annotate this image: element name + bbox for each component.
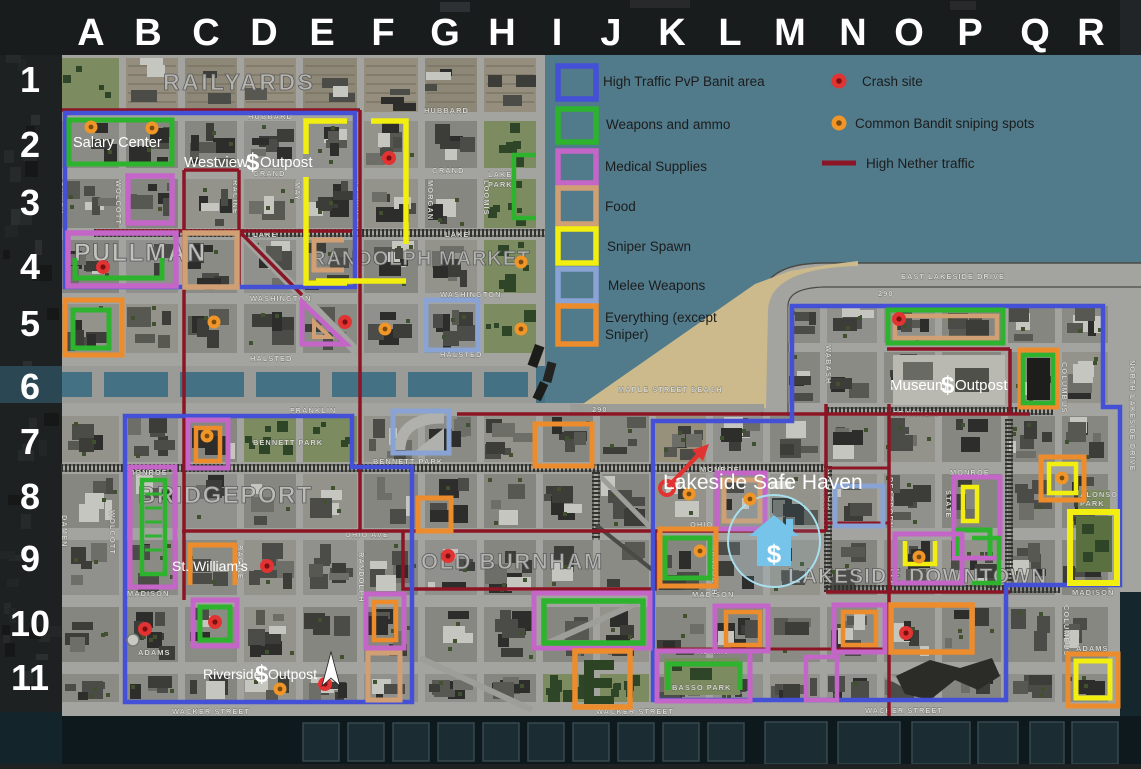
svg-text:MAPLE STREET BEACH: MAPLE STREET BEACH [618, 385, 723, 394]
svg-text:NORTH LAKESIDE DRIVE: NORTH LAKESIDE DRIVE [1128, 360, 1137, 472]
svg-text:GRAND: GRAND [432, 166, 465, 175]
svg-text:LAKE: LAKE [445, 230, 469, 239]
svg-text:5: 5 [20, 303, 40, 344]
svg-text:MORGAN: MORGAN [426, 180, 435, 220]
svg-text:O: O [894, 12, 924, 54]
svg-text:Riverside: Riverside [203, 666, 262, 682]
svg-text:B: B [134, 12, 161, 54]
svg-text:Crash site: Crash site [862, 74, 923, 89]
svg-text:H: H [488, 12, 515, 54]
svg-text:$: $ [255, 661, 269, 688]
svg-text:RAILYARDS: RAILYARDS [163, 69, 315, 95]
svg-text:LOOMIS: LOOMIS [482, 180, 491, 216]
svg-text:G: G [430, 12, 460, 54]
svg-text:A: A [77, 12, 104, 54]
svg-text:EAST LAKESIDE DRIVE: EAST LAKESIDE DRIVE [901, 272, 1005, 281]
svg-text:RANDOLPH MARKET: RANDOLPH MARKET [311, 248, 530, 270]
svg-text:$: $ [767, 539, 782, 569]
svg-text:Sniper): Sniper) [605, 327, 649, 342]
svg-text:Outpost: Outpost [955, 377, 1008, 394]
svg-text:P: P [957, 12, 982, 54]
svg-text:C: C [192, 12, 219, 54]
svg-text:$: $ [246, 149, 260, 176]
svg-text:FRANKLIN: FRANKLIN [290, 406, 336, 415]
svg-text:High Nether traffic: High Nether traffic [866, 156, 975, 171]
svg-text:ADAMS: ADAMS [138, 648, 171, 657]
svg-text:DAMEN: DAMEN [60, 515, 69, 548]
svg-text:St. William's: St. William's [172, 558, 248, 574]
svg-text:WOLCOTT: WOLCOTT [114, 180, 123, 225]
svg-text:WACKER STREET: WACKER STREET [172, 707, 250, 716]
svg-text:Medical Supplies: Medical Supplies [605, 159, 707, 174]
svg-text:1: 1 [20, 59, 40, 100]
svg-text:Everything (except: Everything (except [605, 310, 717, 325]
svg-text:Museum: Museum [890, 377, 948, 394]
svg-text:LAKE: LAKE [488, 170, 512, 179]
svg-text:$: $ [941, 372, 955, 399]
svg-text:J: J [600, 12, 621, 54]
svg-text:MAY: MAY [293, 182, 302, 201]
svg-text:High Traffic PvP Banit area: High Traffic PvP Banit area [603, 74, 765, 89]
svg-text:Sniper Spawn: Sniper Spawn [607, 239, 691, 254]
svg-text:WOLCOTT: WOLCOTT [108, 510, 117, 555]
svg-text:4: 4 [20, 246, 40, 287]
svg-text:COLUMBUS: COLUMBUS [1060, 362, 1069, 413]
svg-text:M: M [774, 12, 806, 54]
svg-text:E: E [309, 12, 334, 54]
svg-text:7: 7 [20, 421, 40, 462]
svg-text:290: 290 [878, 289, 894, 298]
svg-text:11: 11 [11, 657, 49, 698]
svg-text:BENNETT PARK: BENNETT PARK [373, 457, 443, 466]
svg-text:WABASH: WABASH [824, 345, 833, 384]
svg-text:Westview: Westview [184, 154, 248, 171]
svg-text:6: 6 [20, 366, 40, 407]
svg-text:3: 3 [20, 182, 40, 223]
svg-text:Melee Weapons: Melee Weapons [608, 278, 706, 293]
svg-text:I: I [552, 12, 563, 54]
svg-text:Outpost: Outpost [268, 666, 317, 682]
svg-text:BASSO PARK: BASSO PARK [672, 683, 731, 692]
svg-text:MADISON: MADISON [127, 589, 169, 598]
svg-text:D: D [250, 12, 277, 54]
svg-text:R: R [1077, 12, 1104, 54]
svg-text:8: 8 [20, 476, 40, 517]
svg-text:F: F [371, 12, 394, 54]
svg-text:Salary Center: Salary Center [73, 135, 162, 151]
svg-text:9: 9 [20, 538, 40, 579]
svg-text:MADISON: MADISON [1072, 588, 1114, 597]
svg-text:Outpost: Outpost [260, 154, 313, 171]
svg-text:10: 10 [10, 603, 50, 644]
svg-text:WACKER STREET: WACKER STREET [865, 706, 943, 715]
svg-text:L: L [718, 12, 741, 54]
svg-text:Food: Food [605, 199, 636, 214]
svg-text:2: 2 [20, 124, 40, 165]
svg-text:COLUMBUS: COLUMBUS [1062, 605, 1071, 656]
svg-text:BENNETT PARK: BENNETT PARK [253, 438, 323, 447]
svg-text:HUBBARD: HUBBARD [424, 106, 469, 115]
svg-text:Q: Q [1020, 12, 1050, 54]
svg-text:Lakeside Safe Haven: Lakeside Safe Haven [663, 471, 863, 494]
svg-text:K: K [658, 12, 686, 54]
svg-text:HALSTED: HALSTED [250, 354, 292, 363]
svg-text:Weapons and ammo: Weapons and ammo [606, 117, 730, 132]
svg-text:Common Bandit sniping spots: Common Bandit sniping spots [855, 116, 1035, 131]
svg-text:N: N [839, 12, 866, 54]
